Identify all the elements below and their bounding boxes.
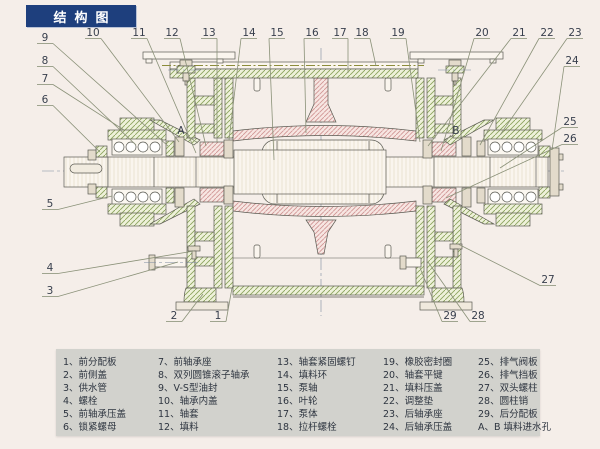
leader-line [58, 196, 112, 210]
leader-line [53, 67, 136, 146]
legend-item: 24、后轴承压盖 [383, 421, 478, 434]
legend-item: 2、前侧盖 [63, 369, 158, 382]
legend-item: 28、圆柱销 [478, 395, 551, 408]
legend-item: 16、叶轮 [277, 395, 383, 408]
legend-item: 9、V-S型油封 [158, 382, 277, 395]
legend-item: 13、轴套紧固螺钉 [277, 356, 383, 369]
legend-item: 20、轴套平键 [383, 369, 478, 382]
legend-item: 21、填料压盖 [383, 382, 478, 395]
legend-item: 27、双头螺柱 [478, 382, 551, 395]
leader-line [458, 244, 540, 286]
legend-item: 8、双列圆锥滚子轴承 [158, 369, 277, 382]
leader-line [552, 67, 564, 151]
legend-item: 4、螺栓 [63, 395, 158, 408]
legend-column: 7、前轴承座8、双列圆锥滚子轴承9、V-S型油封10、轴承内盖11、轴套12、填… [158, 356, 277, 436]
leader-line [53, 106, 100, 153]
legend-column: 1、前分配板2、前侧盖3、供水管4、螺栓5、前轴承压盖6、锁紧螺母 [63, 356, 158, 436]
leader-line [304, 39, 306, 134]
legend-panel: 1、前分配板2、前侧盖3、供水管4、螺栓5、前轴承压盖6、锁紧螺母7、前轴承座8… [56, 349, 540, 436]
legend-column: 19、橡胶密封圈20、轴套平键21、填料压盖22、调整垫23、后轴承座24、后轴… [383, 356, 478, 436]
legend-item: 3、供水管 [63, 382, 158, 395]
legend-item: 15、泵轴 [277, 382, 383, 395]
page: 结构图 [0, 0, 600, 449]
legend-column: 13、轴套紧固螺钉14、填料环15、泵轴16、叶轮17、泵体18、拉杆螺栓 [277, 356, 383, 436]
pump-shaft [64, 150, 548, 194]
legend-item: 1、前分配板 [63, 356, 158, 369]
leader-line [500, 39, 567, 136]
casing-bottom-rail [233, 286, 424, 297]
legend-item: 29、后分配板 [478, 408, 551, 421]
legend-item: 19、橡胶密封圈 [383, 356, 478, 369]
legend-item: 17、泵体 [277, 408, 383, 421]
legend-item: 10、轴承内盖 [158, 395, 277, 408]
legend-item: 18、拉杆螺栓 [277, 421, 383, 434]
legend-item: A、B 填料进水孔 [478, 421, 551, 434]
legend-item: 22、调整垫 [383, 395, 478, 408]
casing-top-rail [162, 62, 424, 78]
legend-item: 6、锁紧螺母 [63, 421, 158, 434]
legend-item: 26、排气挡板 [478, 369, 551, 382]
legend-item: 25、排气阀板 [478, 356, 551, 369]
leader-line [58, 262, 178, 297]
legend-column: 25、排气阀板26、排气挡板27、双头螺柱28、圆柱销29、后分配板A、B 填料… [478, 356, 551, 436]
rear-drain-fitting [400, 256, 421, 269]
legend-item: 11、轴套 [158, 408, 277, 421]
legend-item: 7、前轴承座 [158, 356, 277, 369]
legend-item: 23、后轴承座 [383, 408, 478, 421]
legend-item: 14、填料环 [277, 369, 383, 382]
legend-item: 5、前轴承压盖 [63, 408, 158, 421]
legend-item: 12、填料 [158, 421, 277, 434]
